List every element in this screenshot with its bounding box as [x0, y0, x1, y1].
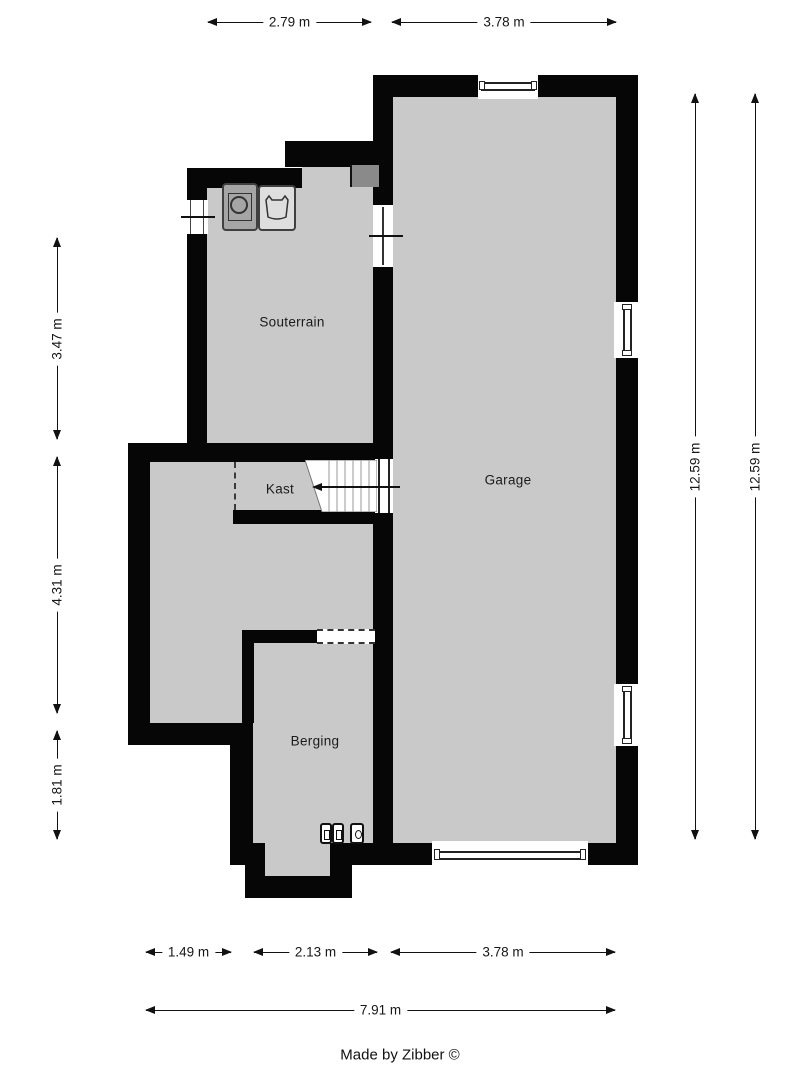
window — [186, 200, 208, 234]
dimension-right-1: 12.59 m — [691, 93, 699, 840]
wall — [233, 510, 377, 524]
dimension-bottom-total: 7.91 m — [145, 1006, 616, 1014]
wall — [330, 843, 393, 865]
credit-text: Made by Zibber © — [340, 1047, 459, 1064]
washing-machine-icon — [222, 183, 258, 231]
wall — [242, 643, 254, 723]
dimension-top-1: 2.79 m — [207, 18, 372, 26]
window — [373, 205, 393, 267]
room-label-kast: Kast — [266, 482, 294, 497]
dimension-left-1: 3.47 m — [53, 237, 61, 440]
dimension-left-2: 4.31 m — [53, 456, 61, 714]
dimension-left-3: 1.81 m — [53, 730, 61, 840]
room-floor-garage — [393, 97, 616, 843]
window — [614, 302, 640, 358]
room-label-berging: Berging — [291, 734, 340, 749]
kast-dashed-boundary — [234, 462, 236, 510]
dimension-label: 2.79 m — [263, 15, 316, 30]
wall — [285, 141, 377, 167]
floorplan: Souterrain Kast Garage Berging 2.79 m 3.… — [0, 0, 810, 1080]
dimension-label: 3.78 m — [476, 945, 529, 960]
dimension-label: 12.59 m — [688, 436, 703, 497]
meter-icon — [320, 823, 332, 844]
duct-block — [350, 165, 379, 187]
dimension-label: 3.78 m — [477, 15, 530, 30]
window — [478, 71, 538, 99]
wall — [128, 443, 150, 745]
dimension-label: 1.81 m — [50, 758, 65, 811]
dimension-label: 7.91 m — [354, 1003, 407, 1018]
wall — [616, 75, 638, 865]
meter-icon — [332, 823, 344, 844]
dimension-bottom-2: 2.13 m — [253, 948, 378, 956]
dimension-right-2: 12.59 m — [751, 93, 759, 840]
dimension-bottom-3: 3.78 m — [390, 948, 616, 956]
window — [317, 629, 375, 644]
dimension-label: 2.13 m — [289, 945, 342, 960]
room-label-souterrain: Souterrain — [259, 315, 324, 330]
dimension-label: 1.49 m — [162, 945, 215, 960]
dimension-bottom-1: 1.49 m — [145, 948, 232, 956]
dimension-label: 12.59 m — [748, 436, 763, 497]
dimension-label: 4.31 m — [50, 558, 65, 611]
stairs-direction-arrow — [312, 483, 322, 491]
dimension-top-2: 3.78 m — [391, 18, 617, 26]
dimension-label: 3.47 m — [50, 312, 65, 365]
room-floor-berging-notch — [263, 843, 330, 876]
stairs-direction-line — [318, 486, 400, 488]
room-label-garage: Garage — [485, 473, 532, 488]
garage-door — [432, 841, 588, 867]
meter-icon — [350, 823, 364, 844]
window — [614, 684, 640, 746]
laundry-sink-icon — [258, 185, 296, 231]
